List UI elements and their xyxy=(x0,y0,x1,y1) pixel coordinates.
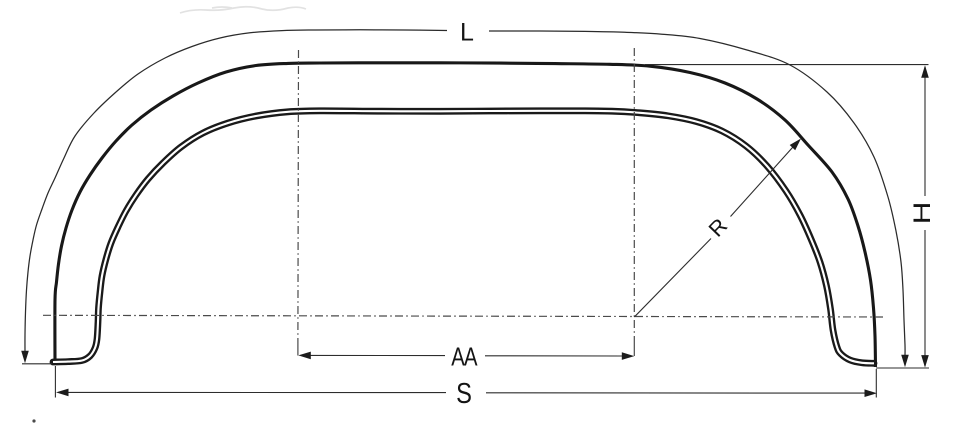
svg-text:S: S xyxy=(456,377,472,410)
svg-text:AA: AA xyxy=(451,342,478,371)
svg-text:L: L xyxy=(460,19,474,47)
svg-text:H: H xyxy=(909,202,935,225)
